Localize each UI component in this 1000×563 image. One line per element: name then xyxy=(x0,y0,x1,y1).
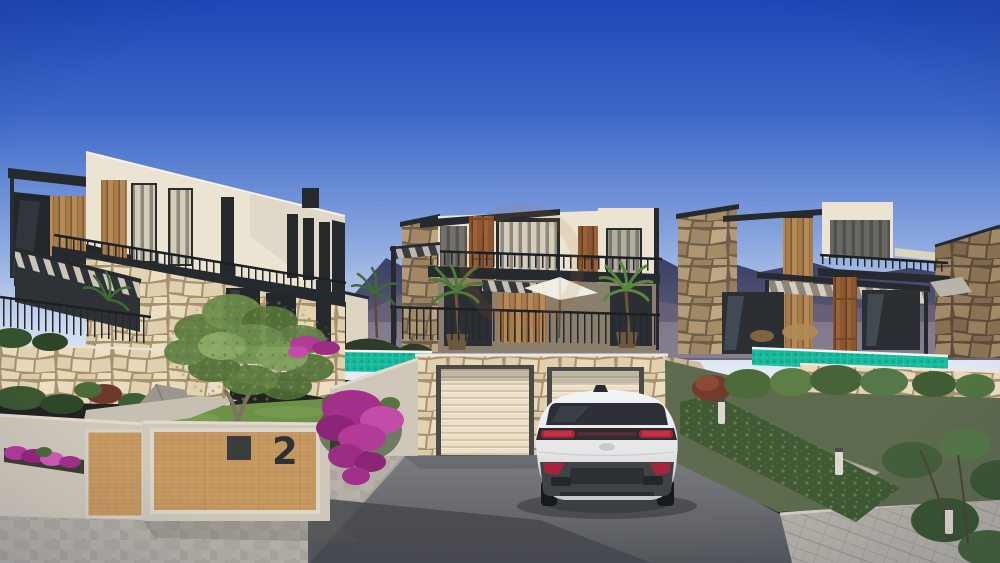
vignette xyxy=(0,0,1000,563)
villa-render-image: 2 xyxy=(0,0,1000,563)
